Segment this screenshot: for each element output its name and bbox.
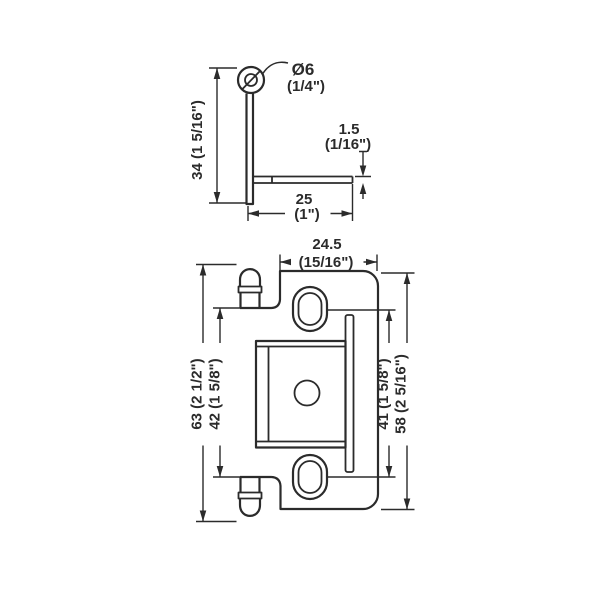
top-finial-cylinder — [241, 293, 260, 309]
front-view: 24.5 (15/16") 63 (2 1/2") 42 (1 5/8") 41… — [189, 236, 415, 522]
knuckle-inner-height-label: 42 (1 5/8") — [207, 358, 224, 429]
frame-wing-profile — [253, 177, 353, 184]
side-height-label: 34 (1 5/16") — [189, 100, 206, 180]
slot-center-distance-label: 41 (1 5/8") — [375, 358, 392, 429]
drawing-canvas: Ø6 (1/4") 34 (1 5/16") 1.5 (1/16") 25 (1… — [0, 0, 600, 600]
overall-height-label: 63 (2 1/2") — [189, 358, 206, 429]
mounting-plate-outline — [240, 271, 378, 509]
thickness-imperial-label: (1/16") — [325, 136, 371, 153]
bottom-finial-cylinder — [241, 477, 260, 493]
top-screw-slot-inner — [299, 293, 322, 325]
door-wing-front — [256, 341, 346, 448]
bottom-finial-dome — [240, 499, 260, 516]
wing-width-imperial-label: (15/16") — [299, 254, 354, 271]
top-finial-ring — [239, 287, 262, 293]
diameter-leader-line — [263, 62, 289, 74]
top-finial-dome — [240, 269, 260, 286]
center-screw-hole — [295, 381, 320, 406]
hinge-technical-drawing: Ø6 (1/4") 34 (1 5/16") 1.5 (1/16") 25 (1… — [0, 0, 600, 600]
pin-diameter-imperial-label: (1/4") — [287, 78, 325, 95]
top-knuckle-finial — [239, 269, 262, 308]
wrap-edge-strip — [346, 315, 354, 472]
door-wing-profile — [247, 94, 254, 205]
door-wing-flange-lines — [257, 347, 345, 442]
wing-width-metric-label: 24.5 — [312, 236, 341, 253]
pin-diameter-metric-label: Ø6 — [292, 60, 315, 79]
bottom-knuckle-finial — [239, 477, 262, 516]
bottom-finial-ring — [239, 493, 262, 499]
plate-height-label: 58 (2 5/16") — [393, 354, 410, 434]
depth-imperial-label: (1") — [294, 206, 319, 223]
bottom-screw-slot-inner — [299, 461, 322, 493]
side-view: Ø6 (1/4") 34 (1 5/16") 1.5 (1/16") 25 (1… — [189, 60, 371, 223]
